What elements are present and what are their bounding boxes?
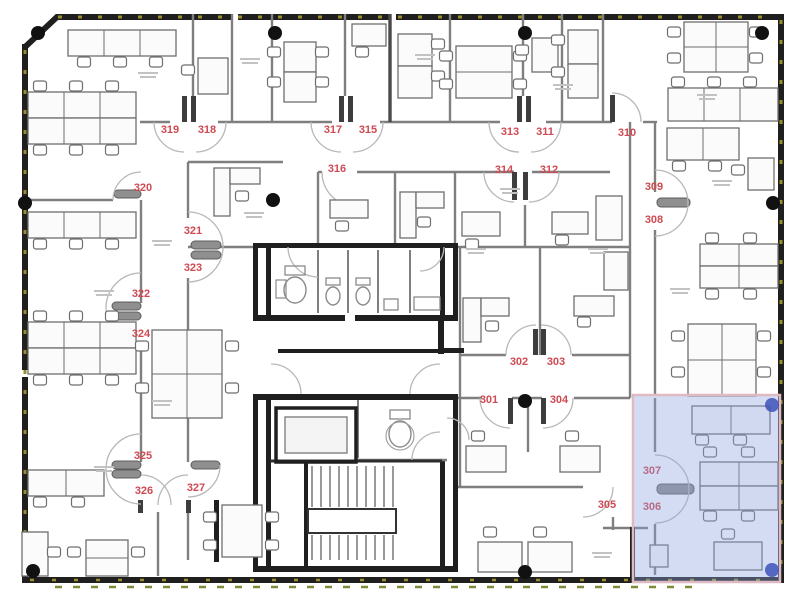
desk bbox=[28, 212, 136, 238]
door-leaf bbox=[191, 251, 221, 259]
door-swing-arc bbox=[612, 93, 641, 122]
core-wall bbox=[253, 394, 458, 400]
room-label-315: 315 bbox=[359, 124, 377, 136]
room-label-308: 308 bbox=[645, 214, 663, 226]
core-wall bbox=[253, 566, 458, 572]
column bbox=[266, 193, 280, 207]
desk bbox=[481, 298, 509, 316]
area-text-mark bbox=[590, 252, 606, 254]
door-jamb bbox=[508, 398, 513, 424]
sink-counter bbox=[414, 297, 440, 310]
desk bbox=[284, 42, 316, 72]
door-swing-arc bbox=[410, 364, 440, 394]
accessible-symbol bbox=[386, 422, 414, 450]
area-text-mark bbox=[588, 248, 608, 250]
chair bbox=[70, 311, 83, 321]
door-swing-arc bbox=[271, 364, 301, 394]
chair bbox=[106, 239, 119, 249]
chair bbox=[708, 77, 721, 87]
desk bbox=[230, 168, 260, 184]
room-label-326: 326 bbox=[135, 485, 153, 497]
area-text-mark bbox=[592, 552, 612, 554]
chair bbox=[136, 383, 149, 393]
room-label-321: 321 bbox=[184, 225, 202, 237]
door-jamb bbox=[541, 329, 546, 355]
chair bbox=[672, 367, 685, 377]
chair bbox=[758, 367, 771, 377]
door-jamb bbox=[523, 172, 528, 200]
desk bbox=[28, 348, 136, 374]
area-text-mark bbox=[152, 400, 172, 402]
area-text-mark bbox=[94, 466, 114, 468]
column bbox=[268, 26, 282, 40]
chair bbox=[78, 57, 91, 67]
chair bbox=[34, 81, 47, 91]
desk bbox=[604, 252, 628, 290]
area-text-mark bbox=[468, 252, 484, 254]
room-label-319: 319 bbox=[161, 124, 179, 136]
desk bbox=[528, 542, 572, 572]
chair bbox=[226, 341, 239, 351]
area-text-mark bbox=[712, 180, 732, 182]
area-text-mark bbox=[96, 470, 112, 472]
room-label-309: 309 bbox=[645, 181, 663, 193]
column bbox=[766, 196, 780, 210]
room-label-322: 322 bbox=[132, 288, 150, 300]
stair-landing bbox=[308, 509, 396, 533]
core-wall bbox=[214, 500, 219, 562]
desk bbox=[463, 298, 481, 342]
selection-region[interactable] bbox=[633, 395, 780, 582]
area-text-mark bbox=[154, 244, 170, 246]
chair bbox=[70, 239, 83, 249]
door-swing-arc bbox=[158, 475, 188, 505]
chair bbox=[150, 57, 163, 67]
chair bbox=[744, 289, 757, 299]
area-text-mark bbox=[417, 58, 433, 60]
room-label-317: 317 bbox=[324, 124, 342, 136]
chair bbox=[668, 27, 681, 37]
chair bbox=[70, 81, 83, 91]
toilet-tank bbox=[326, 278, 340, 285]
desk bbox=[466, 446, 506, 472]
area-text-mark bbox=[672, 292, 688, 294]
chair bbox=[486, 321, 499, 331]
area-text-mark bbox=[242, 62, 258, 64]
room-label-314: 314 bbox=[495, 164, 514, 176]
chair bbox=[432, 39, 445, 49]
room-label-310: 310 bbox=[618, 127, 636, 139]
column bbox=[518, 394, 532, 408]
column bbox=[755, 26, 769, 40]
chair bbox=[316, 47, 329, 57]
door-leaf bbox=[191, 241, 221, 249]
door-swing-arc bbox=[288, 247, 318, 277]
door-jamb bbox=[182, 96, 187, 122]
door-swing-arc bbox=[506, 325, 536, 355]
chair bbox=[516, 45, 529, 55]
desk bbox=[28, 92, 136, 118]
door-jamb bbox=[138, 500, 143, 513]
desk bbox=[552, 212, 588, 234]
chair bbox=[356, 47, 369, 57]
desk bbox=[68, 30, 176, 56]
chair bbox=[70, 375, 83, 385]
chair bbox=[552, 67, 565, 77]
desk bbox=[560, 446, 600, 472]
chair bbox=[106, 311, 119, 321]
desk bbox=[214, 168, 230, 216]
desk bbox=[668, 88, 778, 121]
selection-layer[interactable] bbox=[633, 395, 780, 582]
chair bbox=[236, 191, 249, 201]
chair bbox=[706, 289, 719, 299]
chair bbox=[534, 527, 547, 537]
door-leaf bbox=[191, 461, 220, 469]
desk bbox=[568, 64, 598, 98]
door-swing-arc bbox=[412, 432, 440, 460]
floor-plan-canvas[interactable]: 3193183173153133113103163143123203093083… bbox=[0, 0, 800, 600]
chair bbox=[68, 547, 81, 557]
chair bbox=[316, 77, 329, 87]
area-text-mark bbox=[154, 404, 170, 406]
desk bbox=[352, 24, 386, 46]
chair bbox=[34, 497, 47, 507]
area-text-mark bbox=[670, 288, 690, 290]
chair bbox=[106, 375, 119, 385]
room-label-323: 323 bbox=[184, 262, 202, 274]
chair bbox=[72, 497, 85, 507]
chair bbox=[268, 47, 281, 57]
area-text-mark bbox=[553, 84, 573, 86]
chair bbox=[34, 375, 47, 385]
core-wall bbox=[253, 243, 458, 248]
room-label-324: 324 bbox=[132, 328, 151, 340]
room-label-318: 318 bbox=[198, 124, 216, 136]
chair bbox=[106, 81, 119, 91]
chair bbox=[70, 145, 83, 155]
chair bbox=[744, 233, 757, 243]
chair bbox=[750, 53, 763, 63]
door-leaf bbox=[112, 302, 141, 310]
door-jamb bbox=[191, 96, 196, 122]
chair bbox=[758, 331, 771, 341]
room-label-313: 313 bbox=[501, 126, 519, 138]
chair bbox=[106, 145, 119, 155]
door-jamb bbox=[512, 172, 517, 200]
area-text-mark bbox=[246, 216, 262, 218]
door-jamb bbox=[517, 96, 522, 122]
room-label-305: 305 bbox=[598, 499, 616, 511]
room-label-303: 303 bbox=[547, 356, 565, 368]
area-text-mark bbox=[244, 212, 264, 214]
chair bbox=[706, 233, 719, 243]
desk bbox=[28, 322, 136, 348]
area-text-mark bbox=[502, 192, 518, 194]
desk bbox=[574, 296, 614, 316]
door-jamb bbox=[339, 96, 344, 122]
desk bbox=[748, 158, 774, 190]
toilet-tank bbox=[390, 410, 410, 419]
chair bbox=[672, 331, 685, 341]
desk bbox=[284, 72, 316, 102]
chair bbox=[418, 217, 431, 227]
door-jamb bbox=[348, 96, 353, 122]
chair bbox=[472, 431, 485, 441]
chair bbox=[136, 341, 149, 351]
core-wall bbox=[278, 349, 458, 353]
door-jamb bbox=[526, 96, 531, 122]
chair bbox=[673, 161, 686, 171]
chair bbox=[34, 239, 47, 249]
desk bbox=[398, 34, 432, 66]
room-label-301: 301 bbox=[480, 394, 498, 406]
area-text-mark bbox=[138, 72, 158, 74]
door-swing-arc bbox=[484, 172, 514, 202]
sink bbox=[384, 299, 398, 310]
toilet-tank bbox=[285, 266, 305, 275]
room-label-304: 304 bbox=[550, 394, 569, 406]
chair bbox=[709, 161, 722, 171]
door-swing-arc bbox=[529, 172, 559, 202]
core-wall bbox=[440, 460, 445, 572]
column bbox=[518, 565, 532, 579]
room-label-312: 312 bbox=[540, 164, 558, 176]
area-text-mark bbox=[94, 290, 114, 292]
chair bbox=[34, 311, 47, 321]
desk bbox=[416, 192, 444, 208]
column bbox=[31, 26, 45, 40]
chair bbox=[668, 53, 681, 63]
toilet bbox=[284, 277, 306, 303]
desk bbox=[596, 196, 622, 240]
core-wall bbox=[266, 243, 271, 320]
selection-handle[interactable] bbox=[765, 563, 779, 577]
chair bbox=[578, 317, 591, 327]
desk bbox=[478, 542, 522, 572]
area-text-mark bbox=[415, 54, 435, 56]
elevator-car bbox=[285, 417, 347, 453]
desk bbox=[330, 200, 368, 218]
chair bbox=[440, 79, 453, 89]
chair bbox=[114, 57, 127, 67]
selection-handle[interactable] bbox=[765, 398, 779, 412]
chair bbox=[552, 35, 565, 45]
chair bbox=[732, 165, 745, 175]
area-text-mark bbox=[555, 88, 571, 90]
column bbox=[26, 564, 40, 578]
door-jamb bbox=[541, 398, 546, 424]
chair bbox=[48, 547, 61, 557]
door-leaf bbox=[112, 461, 141, 469]
toilet-tank bbox=[356, 278, 370, 285]
area-text-mark bbox=[466, 248, 486, 250]
core-wall bbox=[453, 243, 458, 320]
toilet bbox=[326, 287, 340, 305]
door-leaf bbox=[657, 198, 690, 207]
chair bbox=[514, 79, 527, 89]
area-text-mark bbox=[714, 184, 730, 186]
service-core bbox=[214, 243, 635, 578]
column bbox=[518, 26, 532, 40]
chair bbox=[266, 540, 279, 550]
door-jamb bbox=[533, 329, 538, 355]
area-text-mark bbox=[152, 240, 172, 242]
floor-plan: 3193183173153133113103163143123203093083… bbox=[0, 0, 800, 600]
toilet bbox=[356, 287, 370, 305]
meeting-table bbox=[222, 505, 262, 557]
desk bbox=[400, 192, 416, 238]
area-text-mark bbox=[697, 94, 717, 96]
door-jamb bbox=[186, 500, 191, 513]
chair bbox=[556, 235, 569, 245]
area-text-mark bbox=[140, 76, 156, 78]
door-leaf bbox=[112, 470, 141, 478]
area-text-mark bbox=[240, 58, 260, 60]
chair bbox=[672, 77, 685, 87]
chair bbox=[132, 547, 145, 557]
area-text-mark bbox=[500, 188, 520, 190]
chair bbox=[484, 527, 497, 537]
core-wall bbox=[438, 348, 464, 353]
room-label-325: 325 bbox=[134, 450, 152, 462]
chair bbox=[466, 239, 479, 249]
room-label-302: 302 bbox=[510, 356, 528, 368]
door-jamb bbox=[610, 95, 615, 122]
chair bbox=[566, 431, 579, 441]
column bbox=[18, 196, 32, 210]
area-text-mark bbox=[96, 294, 112, 296]
desk bbox=[568, 30, 598, 64]
desk bbox=[198, 58, 228, 94]
chair bbox=[204, 540, 217, 550]
chair bbox=[34, 145, 47, 155]
desk bbox=[398, 66, 432, 98]
desk bbox=[28, 118, 136, 144]
chair bbox=[266, 512, 279, 522]
desk bbox=[462, 212, 500, 236]
room-label-320: 320 bbox=[134, 182, 152, 194]
chair bbox=[226, 383, 239, 393]
room-label-327: 327 bbox=[187, 482, 205, 494]
area-text-mark bbox=[594, 556, 610, 558]
area-text-mark bbox=[699, 98, 715, 100]
chair bbox=[744, 77, 757, 87]
core-wall bbox=[253, 315, 345, 321]
room-label-311: 311 bbox=[536, 126, 554, 138]
chair bbox=[336, 221, 349, 231]
chair bbox=[440, 51, 453, 61]
core-wall bbox=[253, 243, 258, 320]
chair bbox=[204, 512, 217, 522]
chair bbox=[268, 77, 281, 87]
chair bbox=[182, 65, 195, 75]
room-label-316: 316 bbox=[328, 163, 346, 175]
